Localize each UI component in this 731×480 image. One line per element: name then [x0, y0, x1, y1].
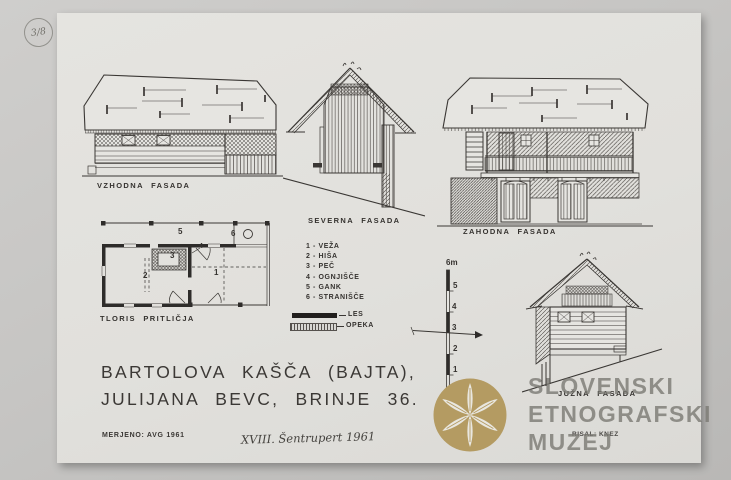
room-legend: 1 - VEŽA 2 - HIŠA 3 - PEČ 4 - OGNJIŠČE 5… [306, 242, 364, 303]
legend-item-veza: 1 - VEŽA [306, 242, 364, 252]
stamp-fraction: 3/8 [30, 26, 47, 39]
sheet-title-line1: BARTOLOVA KAŠČA (BAJTA), [101, 362, 416, 383]
plan-room-number-6: 6 [231, 229, 235, 238]
legend-item-hisa: 2 - HIŠA [306, 252, 364, 262]
plan-room-number-5: 5 [178, 227, 182, 236]
scanned-sheet-photo: { "sheet": { "stamp_fraction": "3/8", "t… [0, 0, 731, 480]
legend-item-pec: 3 - PEČ [306, 262, 364, 272]
plan-room-number-2: 2 [143, 271, 147, 280]
scale-label-6m: 6m [446, 258, 458, 267]
watermark-text-line3: MUZEJ [528, 429, 613, 456]
scale-tick-2: 2 [453, 344, 457, 353]
archive-stamp: 3/8 [22, 16, 55, 49]
east-facade-drawing [82, 71, 283, 185]
measured-note: MERJENO: AVG 1961 [102, 432, 185, 439]
legend-item-ognjisce: 4 - OGNJIŠČE [306, 273, 364, 283]
brick-material-label: OPEKA [346, 321, 374, 331]
museum-logo-flower-icon [431, 376, 509, 454]
wood-material-label: LES [348, 310, 363, 320]
scale-tick-3: 3 [452, 323, 456, 332]
plan-room-number-3: 3 [170, 251, 174, 260]
floor-plan-label: TLORIS PRITLIČJA [100, 314, 195, 323]
scale-tick-4: 4 [452, 302, 456, 311]
brick-material-swatch [290, 323, 337, 331]
brick-swatch-tie-line [337, 326, 344, 327]
north-facade-label: SEVERNA FASADA [308, 216, 401, 225]
legend-item-stranisce: 6 - STRANIŠČE [306, 293, 364, 303]
watermark-text-line1: SLOVENSKI [528, 373, 674, 400]
east-facade-label: VZHODNA FASADA [97, 181, 190, 190]
scale-tick-1: 1 [453, 365, 457, 374]
plan-room-number-4: 4 [199, 243, 203, 250]
west-facade-label: ZAHODNA FASADA [463, 227, 557, 236]
plan-room-number-1: 1 [214, 268, 218, 277]
sheet-title-line2: JULIJANA BEVC, BRINJE 36. [101, 389, 419, 410]
legend-item-gank: 5 - GANK [306, 283, 364, 293]
watermark-text-line2: ETNOGRAFSKI [528, 401, 712, 428]
scale-tick-5: 5 [453, 281, 457, 290]
wood-material-swatch [292, 313, 337, 318]
wood-swatch-tie-line [339, 315, 346, 316]
west-facade-drawing [437, 74, 658, 234]
north-facade-drawing [283, 61, 425, 219]
